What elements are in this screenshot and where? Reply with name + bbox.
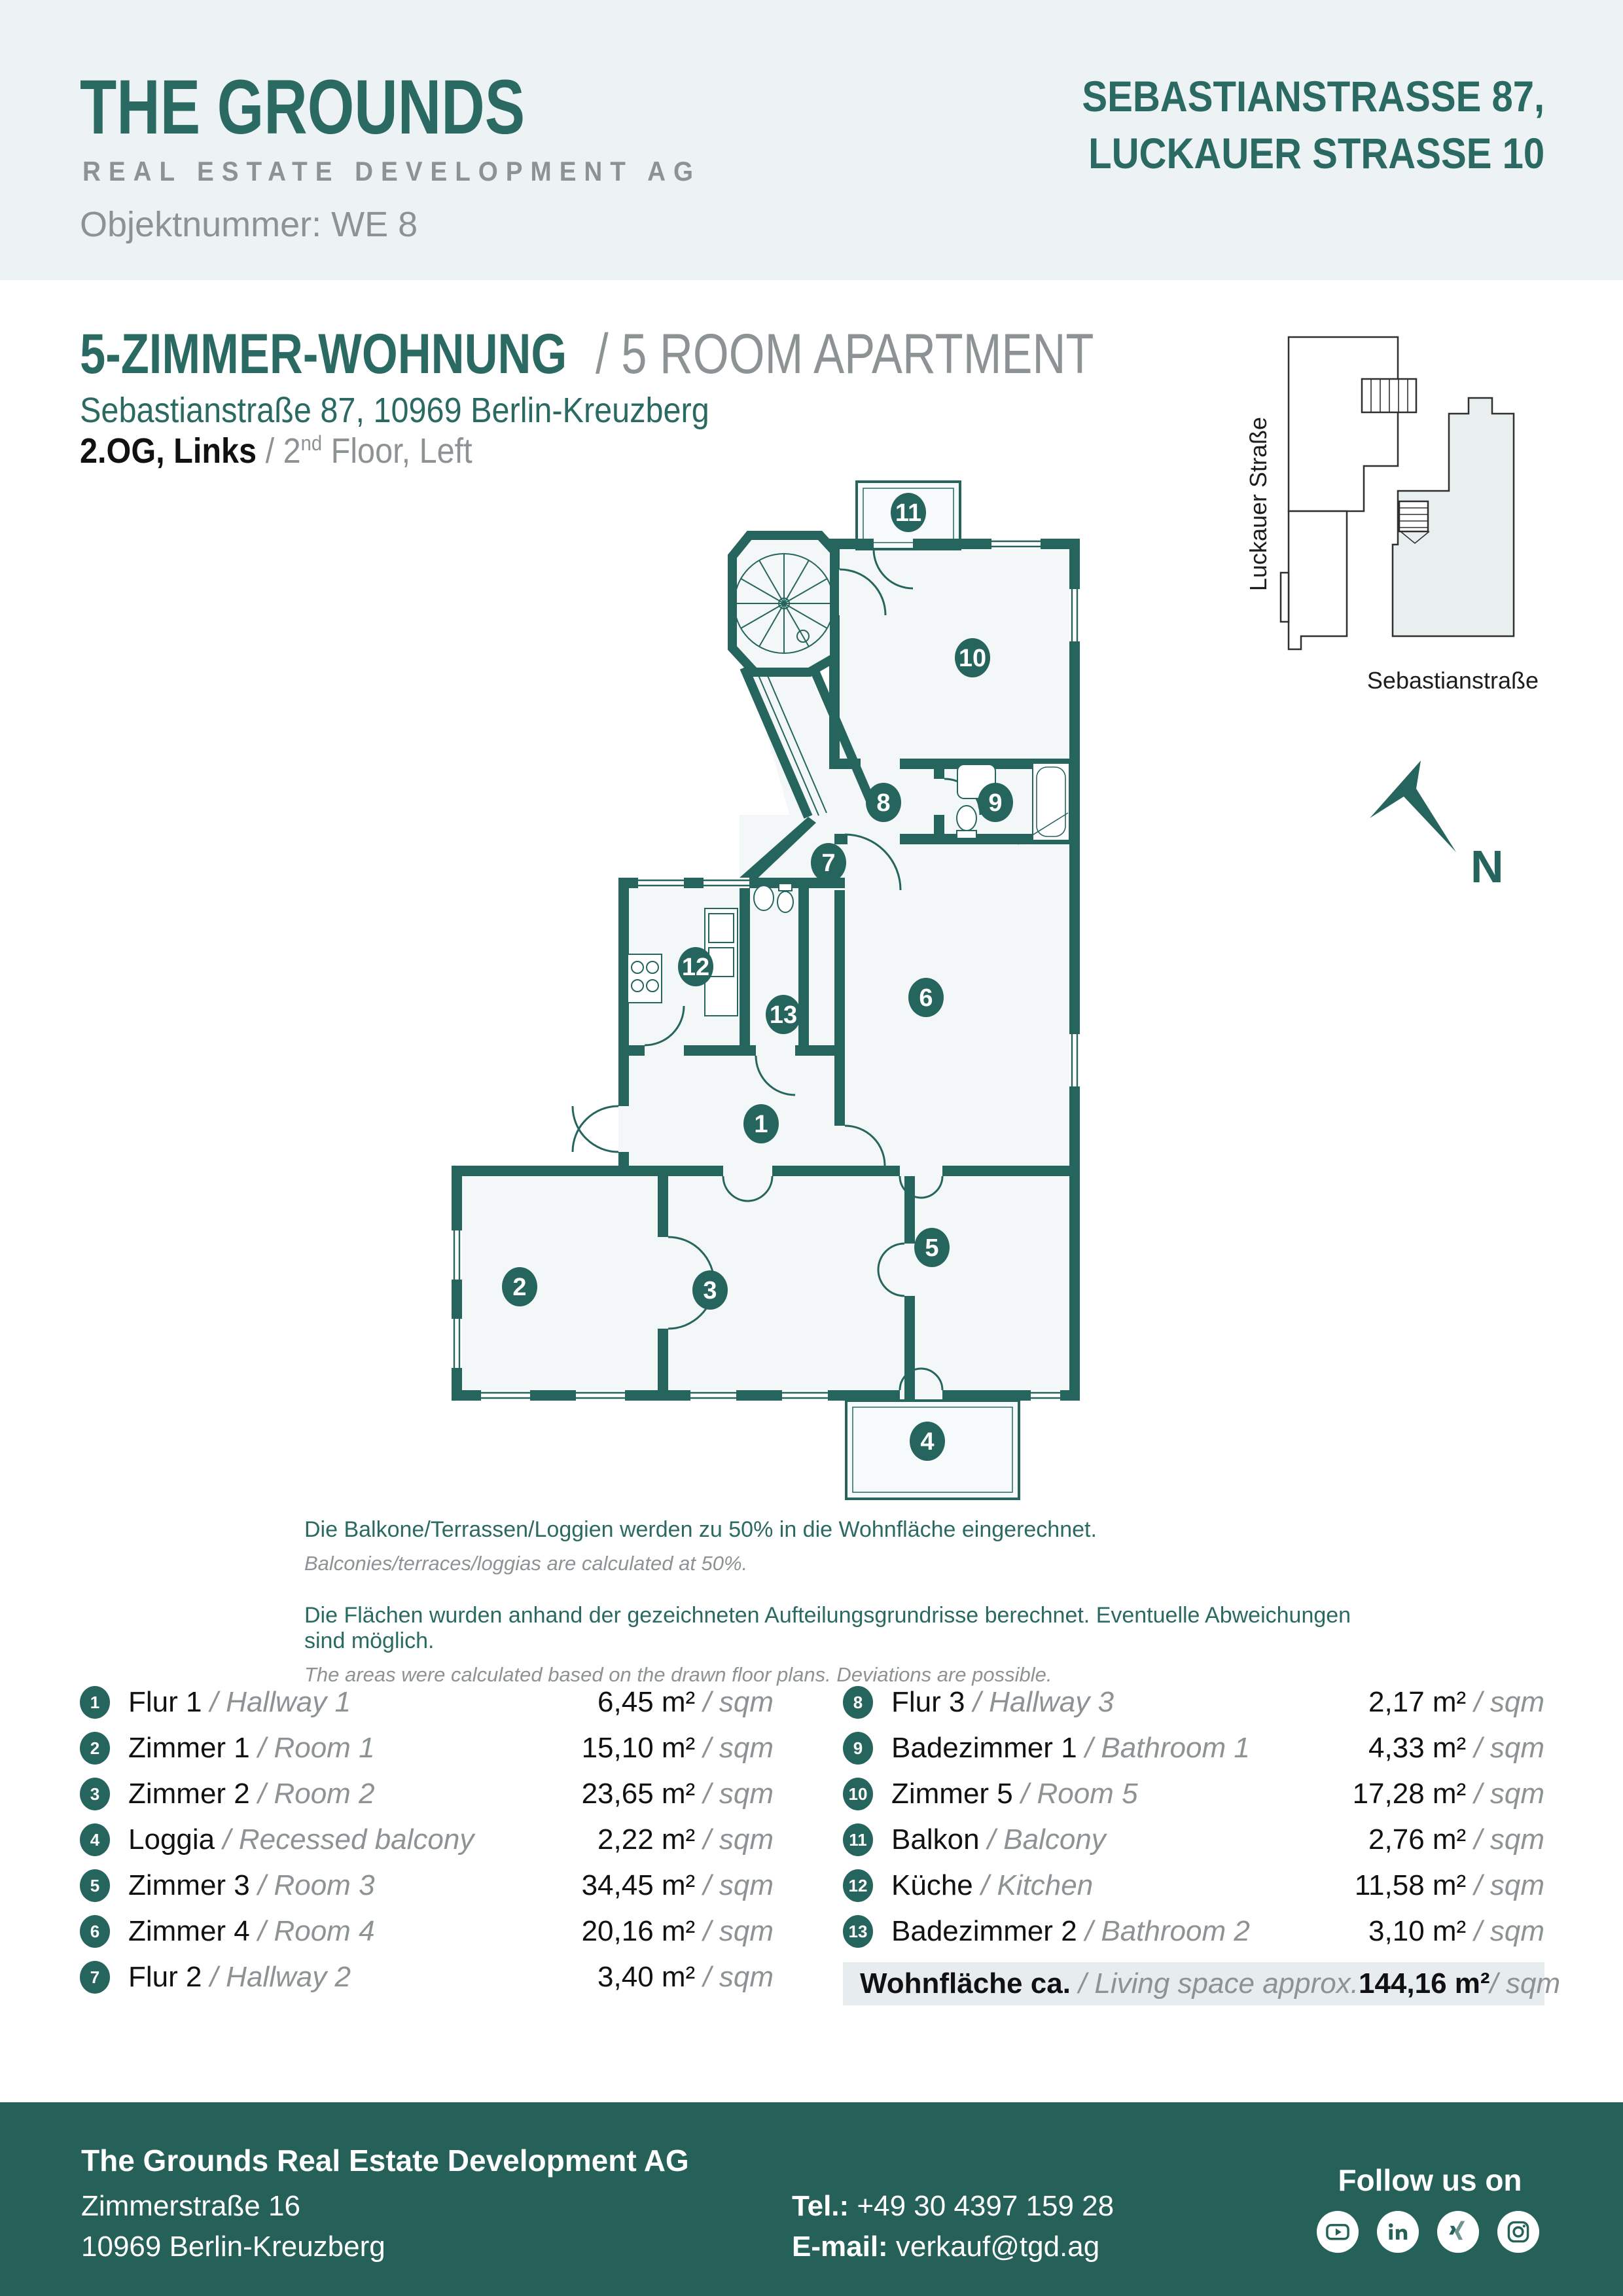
total-label-de: Wohnfläche ca. <box>860 1967 1071 2000</box>
table-row: 7Flur 2 / Hallway 23,40 m² / sqm <box>80 1954 774 2000</box>
title-english: 5 ROOM APARTMENT <box>621 323 1094 386</box>
total-value: 144,16 <box>1359 1967 1447 2000</box>
row-badge: 12 <box>843 1869 873 1902</box>
room-name-de: Flur 1 <box>128 1686 202 1718</box>
footer-company-name: The Grounds Real Estate Development AG <box>81 2143 689 2178</box>
table-row: 9Badezimmer 1 / Bathroom 14,33 m² / sqm <box>843 1725 1544 1771</box>
linkedin-icon[interactable] <box>1377 2211 1419 2253</box>
svg-text:3: 3 <box>703 1277 717 1304</box>
xing-icon[interactable] <box>1437 2211 1479 2253</box>
street-address: Sebastianstraße 87, 10969 Berlin-Kreuzbe… <box>80 390 709 431</box>
note1-english: Balconies/terraces/loggias are calculate… <box>304 1552 1364 1575</box>
north-arrow: N <box>1358 753 1522 893</box>
row-badge: 6 <box>80 1915 110 1948</box>
youtube-icon[interactable] <box>1317 2211 1359 2253</box>
svg-text:13: 13 <box>770 1001 797 1029</box>
table-row: 1Flur 1 / Hallway 16,45 m² / sqm <box>80 1679 774 1725</box>
row-badge: 1 <box>80 1686 110 1719</box>
row-badge: 4 <box>80 1823 110 1856</box>
site-location-map: Luckauer Straße Sebastianstraße <box>1204 301 1623 707</box>
floor-english-number: 2 <box>283 431 301 471</box>
table-row: 11Balkon / Balcony2,76 m² / sqm <box>843 1817 1544 1863</box>
svg-text:4: 4 <box>920 1428 934 1456</box>
header-band: THE GROUNDS REAL ESTATE DEVELOPMENT AG O… <box>0 0 1623 280</box>
floor-german: 2.OG, Links <box>80 431 257 471</box>
row-badge: 13 <box>843 1915 873 1948</box>
svg-text:12: 12 <box>682 954 709 981</box>
follow-us-label: Follow us on <box>1302 2162 1558 2198</box>
footer-address: Zimmerstraße 16 10969 Berlin-Kreuzberg <box>81 2186 385 2268</box>
svg-text:10: 10 <box>959 645 986 672</box>
footer-street: Zimmerstraße 16 <box>81 2190 300 2222</box>
room-badge-5: 5 <box>914 1228 950 1267</box>
brochure-page: THE GROUNDS REAL ESTATE DEVELOPMENT AG O… <box>0 0 1623 2296</box>
svg-text:9: 9 <box>988 789 1002 817</box>
tel-label: Tel.: <box>792 2190 849 2222</box>
room-badge-4: 4 <box>910 1422 945 1461</box>
svg-text:1: 1 <box>754 1111 768 1138</box>
total-label-en: / Living space approx. <box>1079 1967 1359 2000</box>
title-separator: / <box>596 323 621 386</box>
table-row: 2Zimmer 1 / Room 115,10 m² / sqm <box>80 1725 774 1771</box>
sink-icon <box>754 886 774 910</box>
table-row: 6Zimmer 4 / Room 420,16 m² / sqm <box>80 1909 774 1954</box>
room-badge-12: 12 <box>678 947 713 986</box>
title-german: 5-ZIMMER-WOHNUNG <box>80 322 567 387</box>
svg-text:2: 2 <box>512 1274 526 1301</box>
toilet-icon <box>957 806 976 831</box>
company-logo: THE GROUNDS <box>80 63 525 152</box>
table-row: 4Loggia / Recessed balcony2,22 m² / sqm <box>80 1817 774 1863</box>
room-badge-13: 13 <box>766 995 801 1034</box>
row-badge: 10 <box>843 1778 873 1810</box>
spiral-staircase <box>734 554 834 653</box>
toilet-icon <box>777 891 793 912</box>
row-badge: 8 <box>843 1686 873 1719</box>
footer-contact: Tel.: +49 30 4397 159 28 E-mail: verkauf… <box>792 2186 1114 2268</box>
social-links <box>1317 2211 1539 2253</box>
table-row: 13Badezimmer 2 / Bathroom 23,10 m² / sqm <box>843 1909 1544 1954</box>
living-space-total: Wohnfläche ca. / Living space approx. 14… <box>843 1962 1544 2005</box>
room-badge-11: 11 <box>891 493 926 532</box>
site-map-stairwell-mid <box>1399 501 1428 531</box>
site-map-neighbor-building-lower <box>1289 511 1347 649</box>
room-badge-6: 6 <box>908 978 944 1017</box>
room-badge-7: 7 <box>811 843 846 882</box>
row-badge: 2 <box>80 1732 110 1765</box>
row-badge: 3 <box>80 1778 110 1810</box>
floor-plan: 1 2 3 4 5 6 7 8 9 10 11 12 13 <box>442 458 1090 1515</box>
street-label-sebastianstrasse: Sebastianstraße <box>1367 667 1539 694</box>
svg-text:7: 7 <box>821 850 835 877</box>
site-map-neighbor-building <box>1289 337 1398 511</box>
room-badge-2: 2 <box>502 1267 537 1306</box>
company-logo-subtitle: REAL ESTATE DEVELOPMENT AG <box>82 156 701 187</box>
site-map-left-stub <box>1281 573 1289 622</box>
property-address-title: SEBASTIANSTRASSE 87, LUCKAUER STRASSE 10 <box>1082 68 1544 182</box>
room-badge-8: 8 <box>866 783 901 822</box>
room-badge-9: 9 <box>978 783 1013 822</box>
table-row: 12Küche / Kitchen11,58 m² / sqm <box>843 1863 1544 1909</box>
address-title-line1: SEBASTIANSTRASSE 87, <box>1082 72 1544 120</box>
email-label: E-mail: <box>792 2231 888 2263</box>
total-unit: / sqm <box>1490 1967 1561 2000</box>
room-list-right: 8Flur 3 / Hallway 32,17 m² / sqm 9Badezi… <box>843 1679 1544 2005</box>
svg-text:11: 11 <box>895 499 921 527</box>
table-row: 8Flur 3 / Hallway 32,17 m² / sqm <box>843 1679 1544 1725</box>
tel-value: +49 30 4397 159 28 <box>849 2190 1114 2222</box>
bathtub-icon <box>1033 763 1069 840</box>
room-badge-10: 10 <box>955 638 990 677</box>
north-label: N <box>1471 841 1504 892</box>
floor-separator: / <box>257 431 283 471</box>
object-number: Objektnummer: WE 8 <box>80 204 418 245</box>
note1-german: Die Balkone/Terrassen/Loggien werden zu … <box>304 1517 1364 1543</box>
north-arrow-icon <box>1370 761 1456 852</box>
svg-text:8: 8 <box>876 789 890 817</box>
row-badge: 5 <box>80 1869 110 1902</box>
table-row: 10Zimmer 5 / Room 517,28 m² / sqm <box>843 1771 1544 1817</box>
address-title-line2: LUCKAUER STRASSE 10 <box>1088 129 1544 177</box>
row-badge: 9 <box>843 1732 873 1765</box>
instagram-icon[interactable] <box>1497 2211 1539 2253</box>
table-row: 5Zimmer 3 / Room 334,45 m² / sqm <box>80 1863 774 1909</box>
table-row: 3Zimmer 2 / Room 223,65 m² / sqm <box>80 1771 774 1817</box>
floor-english-ordinal: nd <box>301 431 322 455</box>
room-name-en: Hallway 1 <box>226 1686 351 1718</box>
room-badge-1: 1 <box>743 1104 779 1143</box>
email-value: verkauf@tgd.ag <box>888 2231 1100 2263</box>
room-badge-3: 3 <box>692 1270 728 1310</box>
svg-text:6: 6 <box>919 984 933 1012</box>
room-list-left: 1Flur 1 / Hallway 16,45 m² / sqm 2Zimmer… <box>80 1679 774 2000</box>
page-title: 5-ZIMMER-WOHNUNG / 5 ROOM APARTMENT <box>80 322 1203 387</box>
footer: The Grounds Real Estate Development AG Z… <box>0 2102 1623 2296</box>
row-badge: 7 <box>80 1961 110 1994</box>
street-label-luckauer: Luckauer Straße <box>1245 417 1272 591</box>
svg-text:5: 5 <box>925 1234 938 1262</box>
hob-icon <box>632 961 643 973</box>
footer-city: 10969 Berlin-Kreuzberg <box>81 2231 385 2263</box>
row-badge: 11 <box>843 1823 873 1856</box>
floor-info: 2.OG, Links / 2nd Floor, Left <box>80 431 473 471</box>
note2-german: Die Flächen wurden anhand der gezeichnet… <box>304 1603 1364 1654</box>
